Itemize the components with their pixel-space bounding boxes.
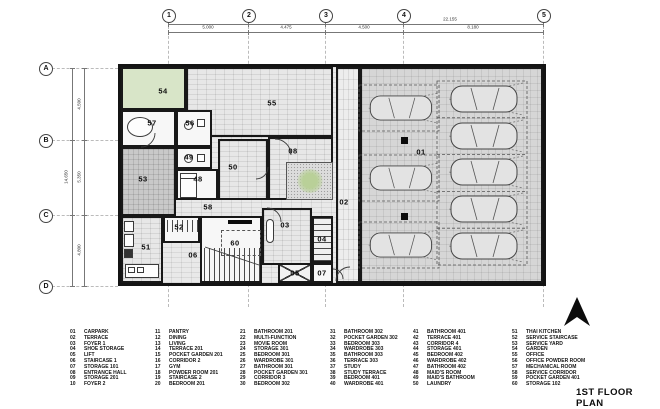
legend-item-number: 20 (155, 382, 169, 388)
room-label-08: 08 (288, 147, 297, 156)
dim-tick (82, 68, 87, 69)
legend-item-label: BEDROOM 302 (254, 381, 290, 387)
room-label-06: 06 (188, 251, 197, 260)
grid-row-bubble: B (39, 134, 53, 148)
sink-fixture (197, 154, 205, 162)
north-arrow-icon (562, 296, 592, 328)
dim-tick (82, 215, 87, 216)
dim-top-segment-label: 4.475 (280, 25, 291, 30)
grid-column-bubble: 3 (319, 9, 333, 23)
dim-tick (82, 140, 87, 141)
legend-item: 30BEDROOM 302 (240, 382, 308, 388)
dim-tick (70, 215, 75, 216)
room-label-57: 57 (147, 119, 156, 128)
room-label-49: 49 (184, 153, 193, 162)
dim-line-left-total (72, 68, 73, 286)
legend-item-number: 30 (240, 382, 254, 388)
legend-item-label: STORAGE 102 (526, 381, 560, 387)
dim-left-segment-label: 4.500 (77, 98, 82, 109)
sink-fixture (197, 119, 205, 127)
car-icon (441, 229, 525, 263)
room-50-laundry (218, 139, 268, 200)
dim-top-segment-label: 4.500 (358, 25, 369, 30)
dim-tick (325, 30, 326, 35)
room-label-01: 01 (416, 148, 425, 157)
dim-left-segment-label: 4.800 (77, 244, 82, 255)
grid-row-bubble: D (39, 280, 53, 294)
room-57-mechanical-room (121, 110, 176, 147)
room-label-07: 07 (317, 269, 326, 278)
room-label-03: 03 (280, 221, 289, 230)
grid-column-bubble: 4 (397, 9, 411, 23)
grid-row-bubble: A (39, 62, 53, 76)
legend-item-number: 60 (512, 382, 526, 388)
room-label-02: 02 (339, 198, 348, 207)
floor-plan-drawing: 5455575649485053085852510660030405070201 (118, 64, 546, 286)
dim-line-top-segments (168, 32, 543, 33)
dim-tick (70, 140, 75, 141)
car-icon (361, 228, 439, 262)
legend-column-5: 41BATHROOM 40142TERRACE 40143CORRIDOR 44… (413, 330, 475, 388)
legend-column-2: 11PANTRY12DINING13LIVING14TERRACE 20115P… (155, 330, 223, 388)
dim-tick (70, 286, 75, 287)
structural-column (401, 137, 408, 144)
room-label-04: 04 (317, 235, 326, 244)
dim-left-segment-label: 5.350 (77, 171, 82, 182)
room-label-60: 60 (230, 239, 239, 248)
structural-column (401, 213, 408, 220)
room-label-55: 55 (267, 99, 276, 108)
legend-item-label: BEDROOM 201 (169, 381, 205, 387)
dim-tick (403, 30, 404, 35)
room-49-maids-bathroom (176, 147, 212, 169)
room-60-storage-under-stair (221, 230, 261, 256)
legend-item-number: 10 (70, 382, 84, 388)
room-label-54: 54 (158, 87, 167, 96)
grid-row-bubble: C (39, 209, 53, 223)
room-02-terrace (336, 67, 360, 283)
car-icon (441, 192, 525, 226)
sink-basin (128, 267, 135, 273)
dim-top-segment-label: 5.000 (202, 25, 213, 30)
stair-landing-bar (228, 220, 252, 224)
dim-top-total-label: 22.155 (443, 17, 457, 22)
dim-tick (543, 30, 544, 35)
dim-tick (248, 30, 249, 35)
room-label-50: 50 (228, 163, 237, 172)
dim-line-left-segments (84, 68, 85, 286)
legend-item-label: WARDROBE 401 (344, 381, 383, 387)
legend-item: 40WARDROBE 401 (330, 382, 398, 388)
room-56-office-powder-room (176, 110, 212, 147)
stove-fixture (124, 234, 134, 247)
room-label-56: 56 (185, 119, 194, 128)
legend-item-number: 50 (413, 382, 427, 388)
grid-column-bubble: 2 (242, 9, 256, 23)
plant-icon (297, 169, 323, 193)
legend-item-label: FOYER 2 (84, 381, 105, 387)
legend-item-label: LAUNDRY (427, 381, 451, 387)
room-53-service-yard (121, 147, 176, 216)
car-icon (361, 91, 439, 125)
legend-item: 10FOYER 2 (70, 382, 127, 388)
room-label-48: 48 (193, 175, 202, 184)
room-label-05: 05 (290, 269, 299, 278)
legend-column-1: 01CARPARK02TERRACE03FOYER 104SHOE STORAG… (70, 330, 127, 388)
grid-column-bubble: 5 (537, 9, 551, 23)
legend-item: 20BEDROOM 201 (155, 382, 223, 388)
grid-column-bubble: 1 (162, 9, 176, 23)
dim-line-top-total (168, 24, 543, 25)
legend-column-6: 51THAI KITCHEN52SERVICE STAIRCASE53SERVI… (512, 330, 585, 388)
legend-item: 50LAUNDRY (413, 382, 475, 388)
sink-basin (137, 267, 144, 273)
room-label-58: 58 (203, 203, 212, 212)
appliance-fixture (124, 249, 133, 258)
legend-item-number: 40 (330, 382, 344, 388)
pocket-garden-planter (286, 162, 333, 200)
dim-tick (70, 68, 75, 69)
dim-left-total-label: 14.650 (64, 170, 69, 184)
room-label-51: 51 (141, 243, 150, 252)
dim-tick (168, 30, 169, 35)
floor-plan-sheet: 22.155 14.650 (0, 0, 660, 400)
car-icon (441, 82, 525, 116)
drawing-title: 1ST FLOOR PLAN (576, 387, 660, 409)
room-54-garden (121, 67, 186, 110)
sink-fixture (124, 221, 134, 232)
room-03-foyer-1 (262, 208, 312, 265)
dim-top-segment-label: 8.180 (467, 25, 478, 30)
room-label-52: 52 (174, 223, 183, 232)
car-icon (441, 119, 525, 153)
legend-column-3: 21BATHROOM 20122MULTI-FUNCTION23MOVIE RO… (240, 330, 308, 388)
dim-tick (82, 286, 87, 287)
car-icon (441, 155, 525, 189)
legend-item: 60STORAGE 102 (512, 382, 585, 388)
car-icon (361, 161, 439, 195)
bench-fixture (266, 219, 274, 243)
legend-column-4: 31BATHROOM 30232POCKET GARDEN 30233BEDRO… (330, 330, 398, 388)
room-label-53: 53 (138, 175, 147, 184)
